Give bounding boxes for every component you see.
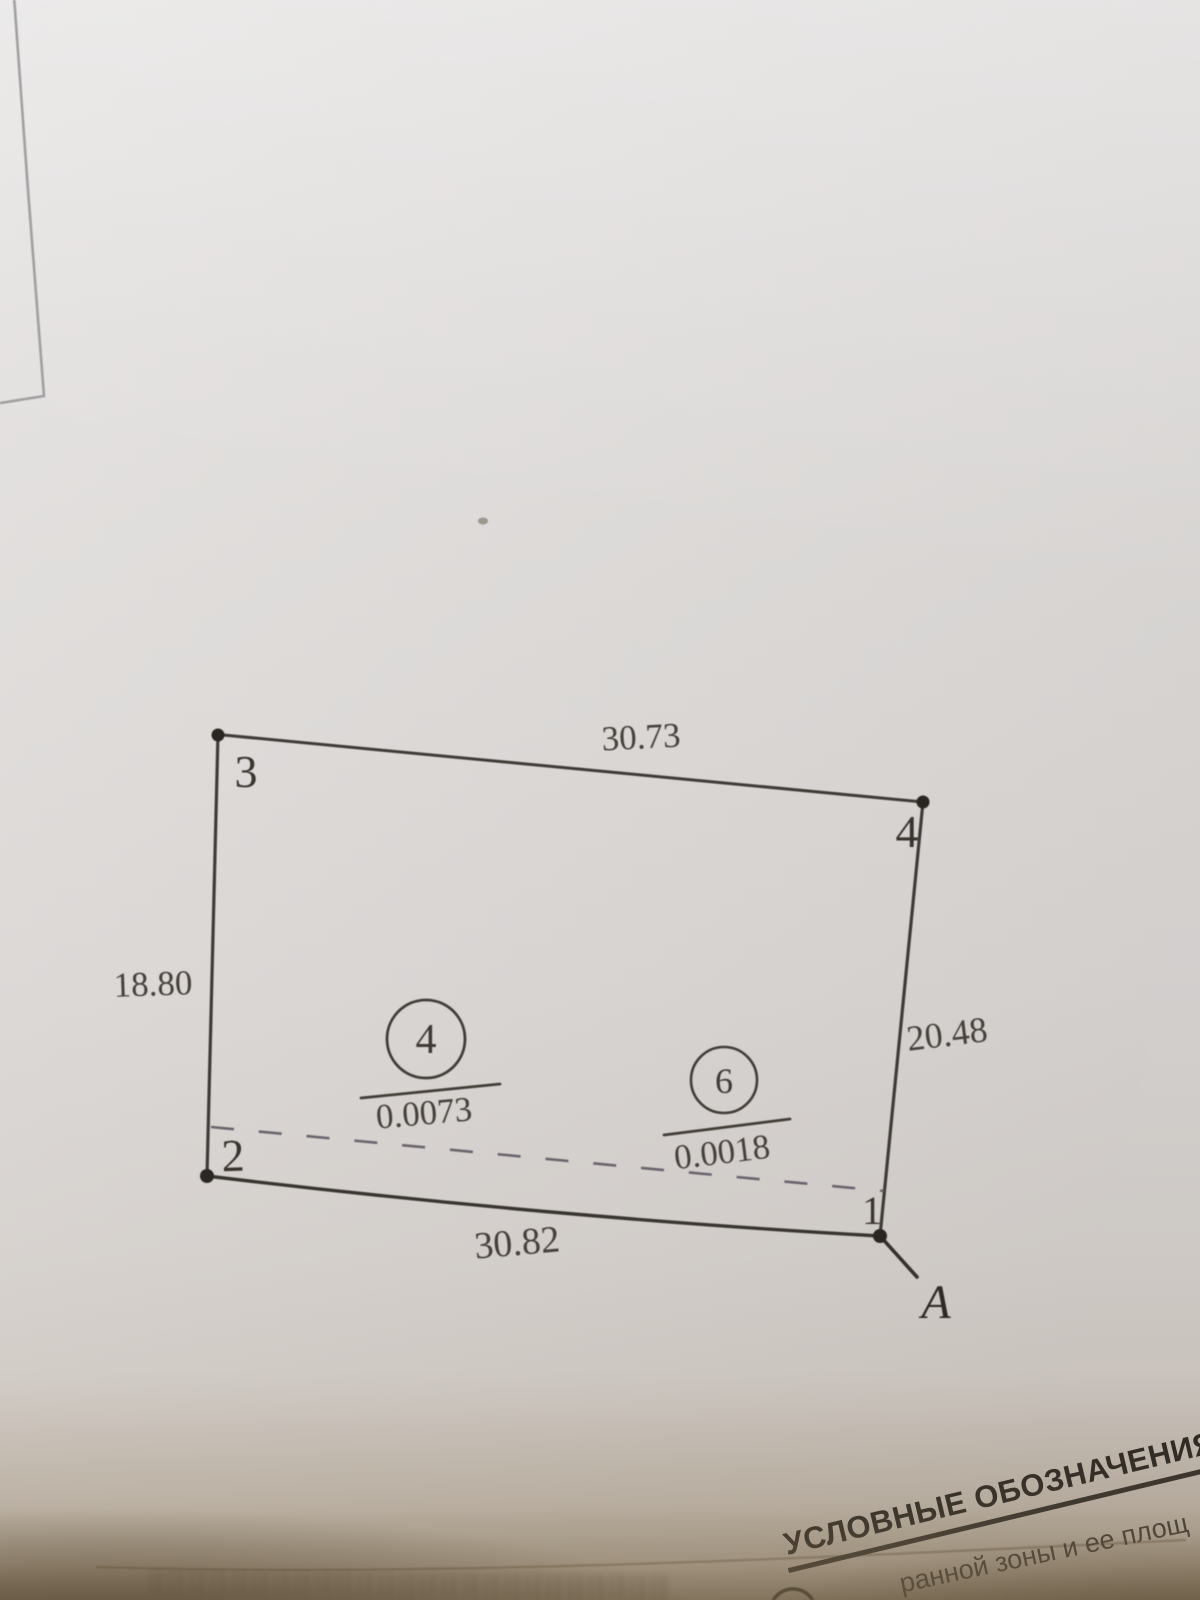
vertex-label-1: 1 <box>862 1191 882 1231</box>
edge-top-3-4 <box>218 735 923 803</box>
vertex-label-2: 2 <box>221 1133 246 1180</box>
plot-plan-drawing: 3 4 2 1 30.73 18.80 20.48 30.82 4 0.0073… <box>0 0 1200 1600</box>
parcel-4-number: 4 <box>416 1019 437 1061</box>
vertex-dot-2 <box>200 1169 214 1183</box>
side-length-bottom: 30.82 <box>473 1220 561 1265</box>
legend-circle-symbol-icon <box>770 1589 816 1600</box>
adjacent-frame-corner <box>0 0 44 404</box>
parcel-6-number: 6 <box>715 1063 733 1099</box>
side-length-top: 30.73 <box>601 717 681 756</box>
point-label-A: A <box>921 1279 950 1327</box>
side-length-left: 18.80 <box>113 965 193 1003</box>
paper-speck <box>478 518 488 525</box>
photographed-survey-page: 3 4 2 1 30.73 18.80 20.48 30.82 4 0.0073… <box>0 0 1200 1600</box>
blurred-stamp-text <box>148 1569 668 1600</box>
dashed-inner-boundary <box>211 1127 884 1191</box>
parcel-4-area: 0.0073 <box>375 1091 474 1134</box>
plan-linework <box>0 0 1200 1600</box>
leader-line-to-A <box>880 1236 917 1277</box>
edge-left-3-2 <box>207 734 218 1176</box>
side-length-right: 20.48 <box>905 1011 990 1057</box>
vertex-label-3: 3 <box>235 749 258 795</box>
vertex-dot-3 <box>212 729 225 742</box>
vertex-label-4: 4 <box>896 809 919 855</box>
